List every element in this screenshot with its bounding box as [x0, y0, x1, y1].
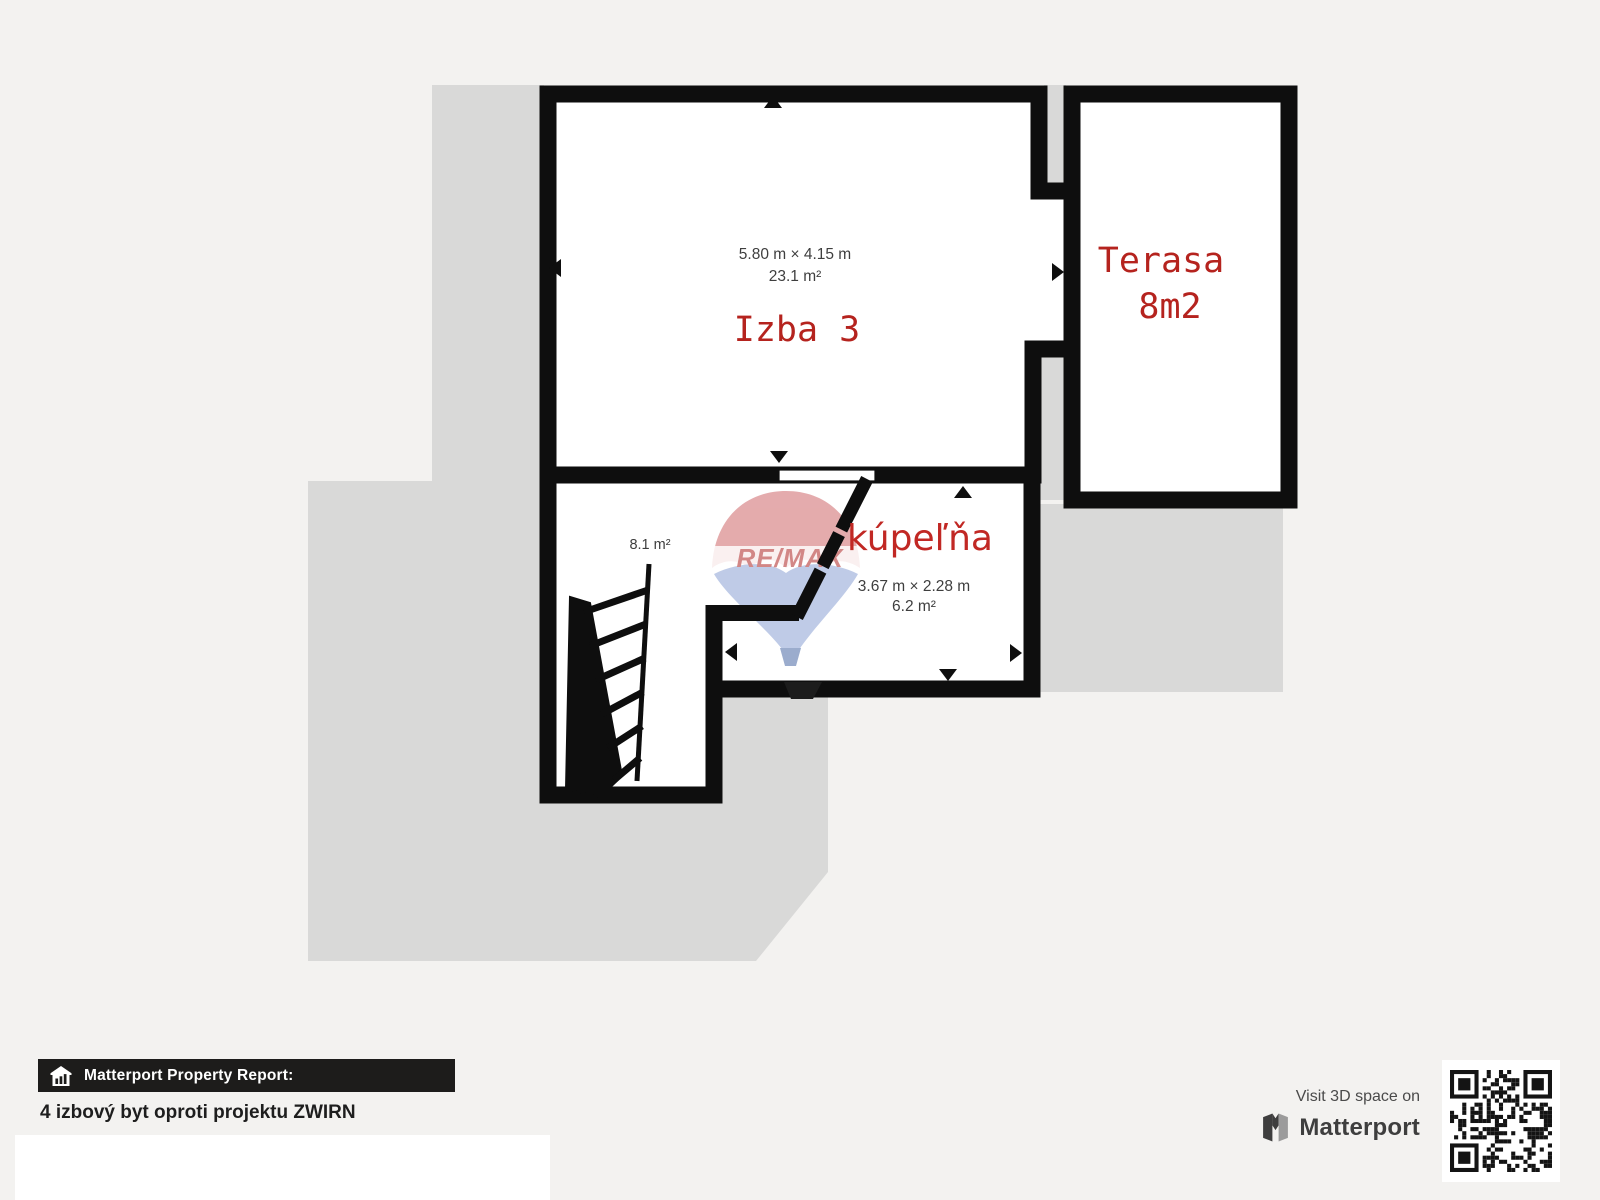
terasa-label: Terasa — [1098, 241, 1224, 281]
visit-3d-text: Visit 3D space on — [1190, 1088, 1420, 1106]
izba3-dimensions: 5.80 m × 4.15 m — [739, 246, 851, 263]
report-header-bar: Matterport Property Report: — [38, 1059, 455, 1092]
kupelna-dimensions: 3.67 m × 2.28 m — [858, 578, 970, 595]
stairs-room-area: 8.1 m² — [629, 537, 670, 553]
underlay-right-block — [1038, 504, 1283, 692]
house-icon — [49, 1064, 73, 1088]
bottom-white-panel — [15, 1135, 550, 1200]
kupelna-area: 6.2 m² — [892, 598, 936, 615]
property-title: 4 izbový byt oproti projektu ZWIRN — [40, 1102, 356, 1124]
matterport-floorplan-report: RE/MAX — [0, 0, 1600, 1200]
matterport-logo-icon — [1260, 1112, 1291, 1143]
kupelna-label: kúpeľňa — [847, 518, 993, 559]
matterport-brand-text: Matterport — [1299, 1114, 1420, 1142]
underlay-mid-gap — [1038, 350, 1066, 500]
matterport-brand: Matterport — [1190, 1112, 1420, 1143]
terasa-area: 8m2 — [1138, 287, 1201, 327]
qr-pattern — [1450, 1070, 1552, 1172]
report-bar-label: Matterport Property Report: — [84, 1067, 294, 1085]
floor-plan: RE/MAX — [0, 0, 1600, 1040]
izba3-label: Izba 3 — [734, 310, 860, 350]
izba3-area: 23.1 m² — [769, 268, 822, 285]
matterport-promo: Visit 3D space on Matterport — [1190, 1088, 1420, 1143]
underlay-left-strip — [432, 85, 544, 485]
qr-code — [1442, 1060, 1560, 1182]
